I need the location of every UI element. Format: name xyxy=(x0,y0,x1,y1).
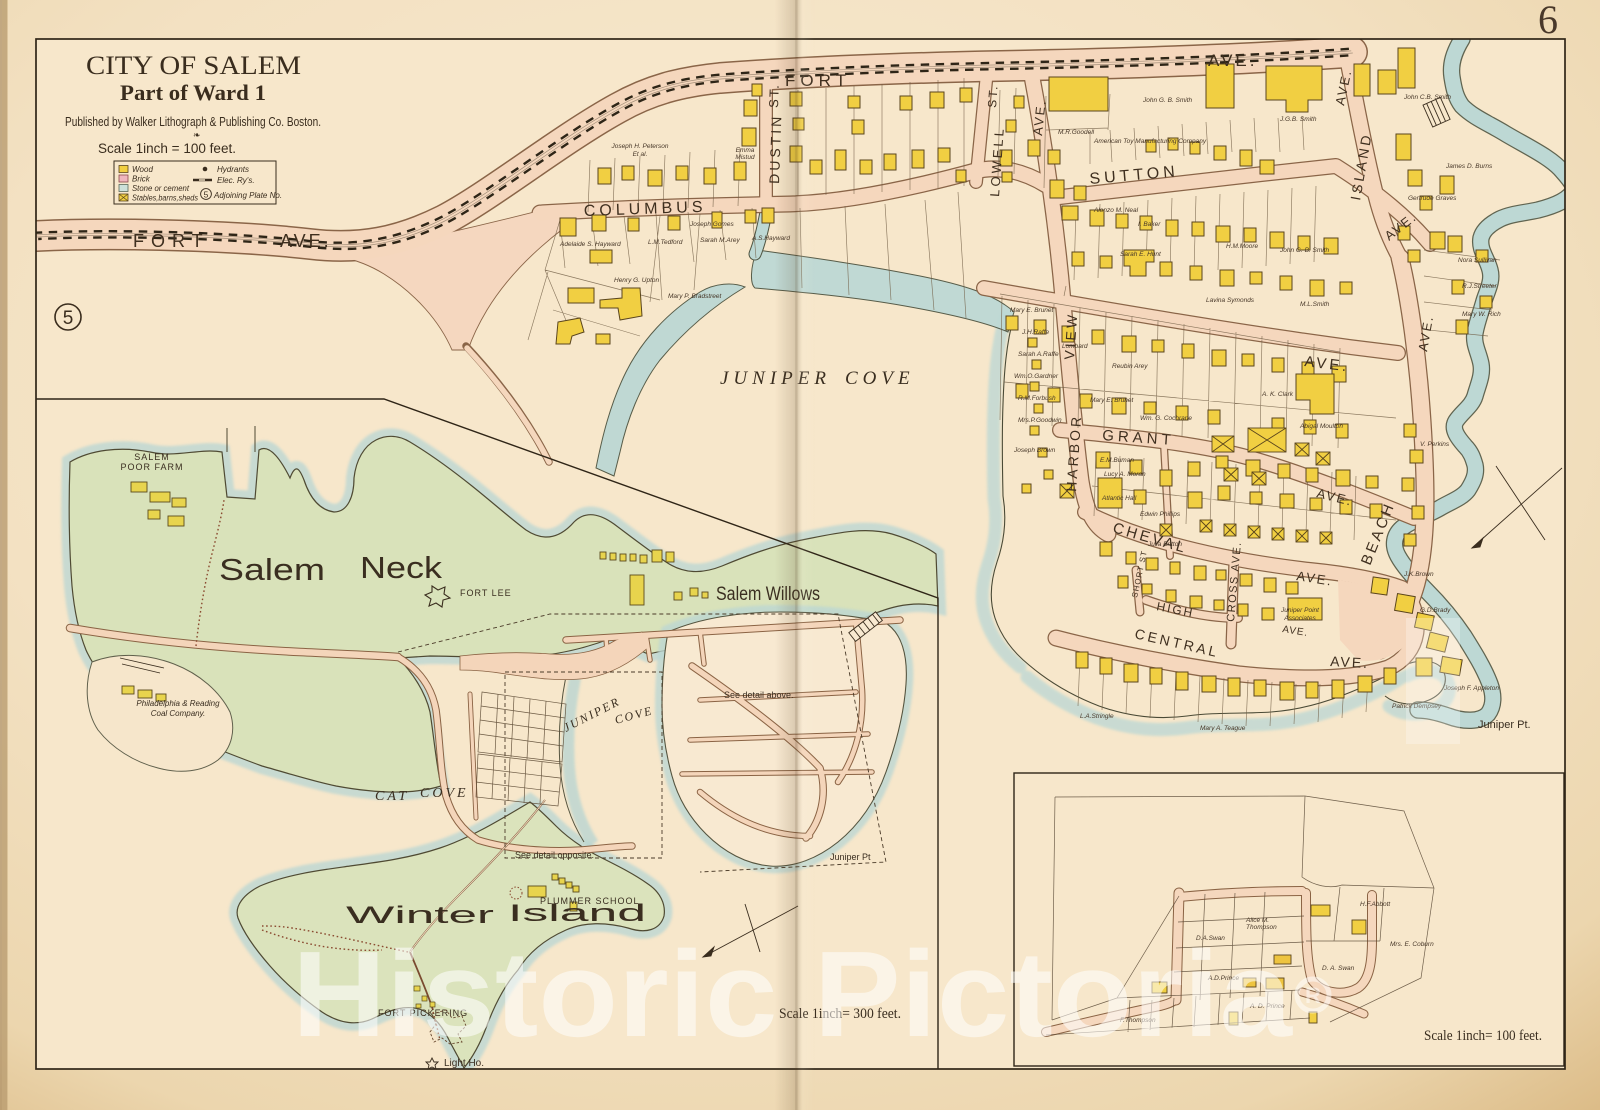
svg-text:Elec. Ry's.: Elec. Ry's. xyxy=(217,176,255,185)
svg-text:AVE.: AVE. xyxy=(1330,653,1370,671)
svg-text:Sarah A.Raffe: Sarah A.Raffe xyxy=(1018,351,1059,358)
svg-text:Coal Company.: Coal Company. xyxy=(151,709,206,718)
svg-text:COVE: COVE xyxy=(420,786,469,801)
svg-text:Mrs.P.Goodwin: Mrs.P.Goodwin xyxy=(1018,417,1062,424)
svg-text:See detail opposite.: See detail opposite. xyxy=(515,850,594,860)
svg-text:Lombard: Lombard xyxy=(1062,343,1088,350)
svg-text:L.M.Tedford: L.M.Tedford xyxy=(648,239,683,246)
svg-text:I. Baker: I. Baker xyxy=(1138,221,1161,228)
svg-text:G.D.Brady: G.D.Brady xyxy=(1420,607,1451,614)
svg-text:Historic Pictoria: Historic Pictoria xyxy=(292,926,1293,1062)
svg-text:Adjoining Plate No.: Adjoining Plate No. xyxy=(213,191,282,200)
svg-text:Neck: Neck xyxy=(360,550,443,585)
svg-text:Brick: Brick xyxy=(132,175,151,184)
svg-text:Juniper Point: Juniper Point xyxy=(1280,607,1320,614)
svg-text:Joseph Gomes: Joseph Gomes xyxy=(689,221,734,228)
svg-text:Juniper Pt.: Juniper Pt. xyxy=(1478,719,1531,731)
svg-text:Stables,barns,sheds: Stables,barns,sheds xyxy=(132,194,198,203)
svg-text:James D. Burns: James D. Burns xyxy=(1445,163,1493,170)
svg-text:Wood: Wood xyxy=(132,165,153,174)
svg-text:Adelaide S. Hayward: Adelaide S. Hayward xyxy=(559,241,621,248)
svg-text:6: 6 xyxy=(1538,0,1558,42)
svg-text:Philadelphia & Reading: Philadelphia & Reading xyxy=(136,699,220,708)
svg-text:Abigal Moulton: Abigal Moulton xyxy=(1299,423,1343,430)
svg-text:Mary E. Brunet: Mary E. Brunet xyxy=(1010,307,1055,314)
svg-text:Atlantic Hall: Atlantic Hall xyxy=(1101,495,1137,502)
svg-text:COVE: COVE xyxy=(845,368,915,389)
svg-text:Hydrants: Hydrants xyxy=(217,165,249,174)
svg-text:Joseph H. Peterson: Joseph H. Peterson xyxy=(610,143,668,150)
svg-text:AVE.: AVE. xyxy=(280,231,332,251)
svg-text:Winter: Winter xyxy=(346,902,494,929)
svg-text:Associates: Associates xyxy=(1283,615,1316,622)
svg-text:Juniper Pt: Juniper Pt xyxy=(830,852,871,862)
svg-text:E.M.Buman: E.M.Buman xyxy=(1100,457,1134,464)
svg-text:Sarah M.Arey: Sarah M.Arey xyxy=(700,237,740,244)
svg-text:Nora Sullivan: Nora Sullivan xyxy=(1458,257,1497,264)
svg-text:Et al.: Et al. xyxy=(633,151,648,158)
svg-text:Mistud: Mistud xyxy=(735,154,755,161)
svg-text:John G. B. Smith: John G. B. Smith xyxy=(1142,97,1193,104)
svg-text:Mary A. Teague: Mary A. Teague xyxy=(1200,725,1246,732)
svg-text:CAT: CAT xyxy=(375,789,409,804)
svg-text:5: 5 xyxy=(204,190,209,200)
svg-text:M.L.Smith: M.L.Smith xyxy=(1300,301,1330,308)
svg-text:FORT LEE: FORT LEE xyxy=(460,588,512,598)
svg-text:AVE.: AVE. xyxy=(1208,51,1257,70)
svg-text:L.A.Stringle: L.A.Stringle xyxy=(1080,713,1114,720)
svg-text:V. Perkins: V. Perkins xyxy=(1420,441,1450,448)
svg-text:R: R xyxy=(1305,983,1321,1008)
svg-text:Wm.O.Gardner: Wm.O.Gardner xyxy=(1014,373,1059,380)
svg-text:Mary P. Bradstreet: Mary P. Bradstreet xyxy=(668,293,723,300)
svg-text:❧: ❧ xyxy=(193,130,201,140)
svg-text:M.R.Goodell: M.R.Goodell xyxy=(1058,129,1095,136)
svg-text:Scale 1inch = 100 feet.: Scale 1inch = 100 feet. xyxy=(98,141,236,156)
svg-text:Edwin Phillips: Edwin Phillips xyxy=(1140,511,1181,518)
svg-text:PLUMMER SCHOOL: PLUMMER SCHOOL xyxy=(540,896,640,906)
svg-text:A. K. Clark: A. K. Clark xyxy=(1261,391,1294,398)
svg-text:H.F.Abbott: H.F.Abbott xyxy=(1360,901,1391,908)
svg-text:Wm. G. Cochrane: Wm. G. Cochrane xyxy=(1140,415,1192,422)
svg-text:R.J.Streeter: R.J.Streeter xyxy=(1462,283,1498,290)
svg-text:D. A. Swan: D. A. Swan xyxy=(1322,965,1355,972)
svg-text:Lavina Symonds: Lavina Symonds xyxy=(1206,297,1255,304)
svg-text:H.M.Moore: H.M.Moore xyxy=(1226,243,1259,250)
svg-text:J.H.Raffe: J.H.Raffe xyxy=(1021,329,1049,336)
svg-text:Reubin Arey: Reubin Arey xyxy=(1112,363,1148,370)
svg-text:Henry G. Upton: Henry G. Upton xyxy=(614,277,660,284)
svg-text:R.M.Forbush: R.M.Forbush xyxy=(1018,395,1056,402)
svg-text:Mary E. Brunet: Mary E. Brunet xyxy=(1090,397,1135,404)
svg-text:CITY OF SALEM: CITY OF SALEM xyxy=(86,51,301,80)
svg-text:Mary W. Rich: Mary W. Rich xyxy=(1462,311,1501,318)
svg-text:Gertrude Graves: Gertrude Graves xyxy=(1408,195,1457,202)
svg-text:POOR FARM: POOR FARM xyxy=(120,462,183,472)
svg-text:Scale 1inch= 100 feet.: Scale 1inch= 100 feet. xyxy=(1424,1028,1542,1044)
svg-text:J.K.Brown: J.K.Brown xyxy=(1403,571,1434,578)
svg-text:Stone or cement: Stone or cement xyxy=(132,184,190,193)
svg-text:Lucy A. Moran: Lucy A. Moran xyxy=(1104,471,1146,478)
svg-text:Published by Walker Lithograph: Published by Walker Lithograph & Publish… xyxy=(65,114,321,129)
svg-text:5: 5 xyxy=(63,308,74,329)
svg-text:American Toy Manufacturing Com: American Toy Manufacturing Company xyxy=(1093,138,1207,145)
svg-text:SALEM: SALEM xyxy=(134,452,170,462)
svg-text:Salem: Salem xyxy=(219,552,325,587)
svg-text:VIEW: VIEW xyxy=(1061,311,1080,360)
svg-text:John C.B. Smith: John C.B. Smith xyxy=(1403,94,1451,101)
svg-text:Mrs. E. Coburn: Mrs. E. Coburn xyxy=(1390,941,1434,948)
svg-text:Sarah E. Hunt: Sarah E. Hunt xyxy=(1120,251,1162,258)
svg-text:John G. B. Smith: John G. B. Smith xyxy=(1279,247,1330,254)
svg-text:Joseph Brown: Joseph Brown xyxy=(1013,447,1056,454)
svg-text:Julia Britton: Julia Britton xyxy=(1147,541,1182,548)
svg-text:Part of Ward 1: Part of Ward 1 xyxy=(120,80,266,105)
svg-text:ST.: ST. xyxy=(985,84,1001,108)
svg-text:FORT: FORT xyxy=(133,231,210,251)
svg-text:J.G.B. Smith: J.G.B. Smith xyxy=(1279,116,1317,123)
svg-text:Alonzo M. Neal: Alonzo M. Neal xyxy=(1093,207,1139,214)
svg-text:Emma: Emma xyxy=(736,147,755,154)
